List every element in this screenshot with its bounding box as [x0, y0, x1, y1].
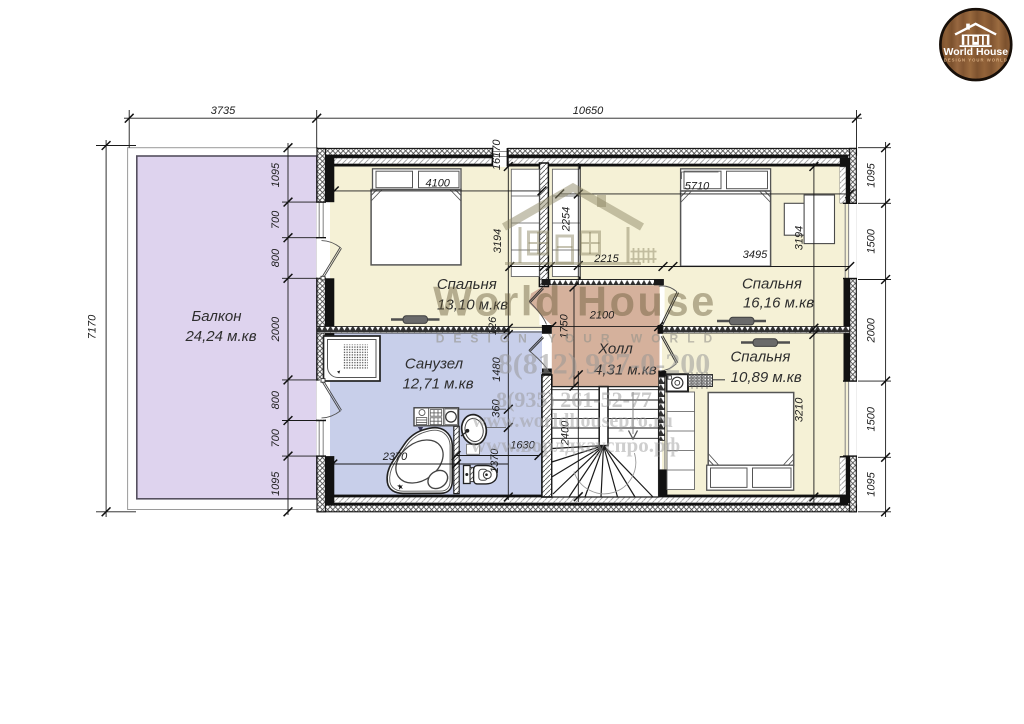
svg-text:Балкон: Балкон	[191, 308, 241, 325]
svg-text:3194: 3194	[492, 229, 504, 253]
svg-text:DESIGN YOUR WORLD: DESIGN YOUR WORLD	[944, 58, 1008, 63]
svg-text:1095: 1095	[866, 162, 878, 187]
svg-text:8(812) 987-0-200: 8(812) 987-0-200	[498, 348, 710, 381]
svg-text:700: 700	[270, 210, 282, 229]
svg-text:700: 700	[270, 428, 282, 447]
svg-text:800: 800	[270, 390, 282, 409]
svg-text:DESIGN YOUR WORLD: DESIGN YOUR WORLD	[436, 332, 721, 346]
svg-text:800: 800	[270, 248, 282, 267]
svg-text:1095: 1095	[866, 471, 878, 496]
svg-text:2254: 2254	[560, 207, 572, 232]
svg-text:1095: 1095	[270, 471, 282, 496]
svg-text:7170: 7170	[87, 314, 99, 339]
svg-text:World House: World House	[944, 46, 1009, 58]
svg-text:10650: 10650	[573, 105, 604, 117]
svg-text:3210: 3210	[794, 397, 806, 422]
svg-text:Спальня: Спальня	[742, 276, 802, 293]
svg-text:10,89 м.кв: 10,89 м.кв	[731, 369, 802, 386]
svg-text:2000: 2000	[866, 317, 878, 343]
svg-text:3194: 3194	[794, 226, 806, 250]
svg-text:www.ворлдхауспро.рф: www.ворлдхауспро.рф	[471, 433, 680, 457]
svg-text:16170: 16170	[491, 139, 503, 170]
svg-text:2370: 2370	[382, 451, 408, 463]
svg-text:www.worldhousepro.ru: www.worldhousepro.ru	[472, 410, 673, 432]
svg-text:8(935) 261-52-77: 8(935) 261-52-77	[496, 387, 652, 412]
svg-text:5710: 5710	[685, 181, 710, 193]
svg-text:3735: 3735	[211, 105, 236, 117]
svg-text:1500: 1500	[866, 228, 878, 253]
svg-text:Спальня: Спальня	[730, 349, 790, 366]
svg-text:1500: 1500	[866, 406, 878, 431]
svg-text:Санузел: Санузел	[405, 356, 464, 373]
svg-text:24,24 м.кв: 24,24 м.кв	[184, 328, 256, 345]
svg-text:12,71 м.кв: 12,71 м.кв	[402, 376, 473, 393]
svg-text:World House: World House	[433, 278, 717, 325]
svg-text:16,16 м.кв: 16,16 м.кв	[743, 295, 814, 312]
svg-text:3495: 3495	[743, 249, 768, 261]
svg-text:2000: 2000	[270, 316, 282, 342]
svg-text:4100: 4100	[425, 178, 450, 190]
svg-text:1095: 1095	[270, 162, 282, 187]
